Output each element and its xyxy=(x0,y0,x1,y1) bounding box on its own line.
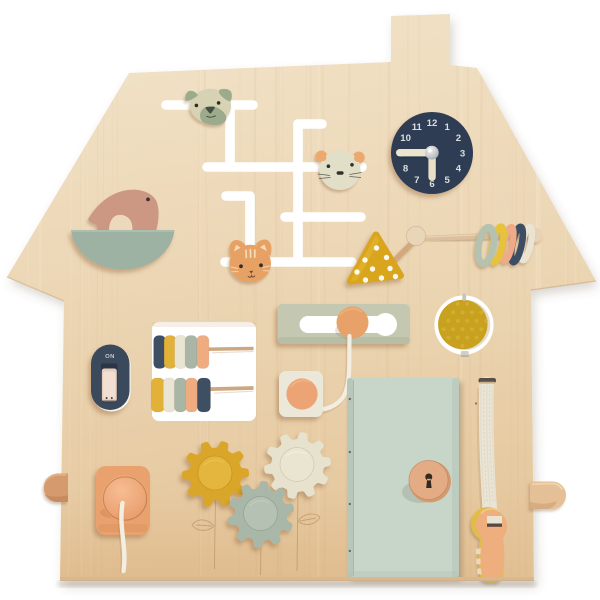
svg-text:2: 2 xyxy=(456,133,461,144)
svg-text:4: 4 xyxy=(456,164,462,175)
svg-text:7: 7 xyxy=(414,175,419,186)
svg-text:12: 12 xyxy=(427,118,438,129)
svg-text:1: 1 xyxy=(445,122,451,133)
svg-text:8: 8 xyxy=(403,164,409,175)
svg-text:5: 5 xyxy=(445,175,451,186)
svg-text:10: 10 xyxy=(400,133,411,144)
svg-text:3: 3 xyxy=(460,148,465,159)
svg-text:11: 11 xyxy=(412,122,423,133)
svg-text:ON: ON xyxy=(105,354,115,360)
